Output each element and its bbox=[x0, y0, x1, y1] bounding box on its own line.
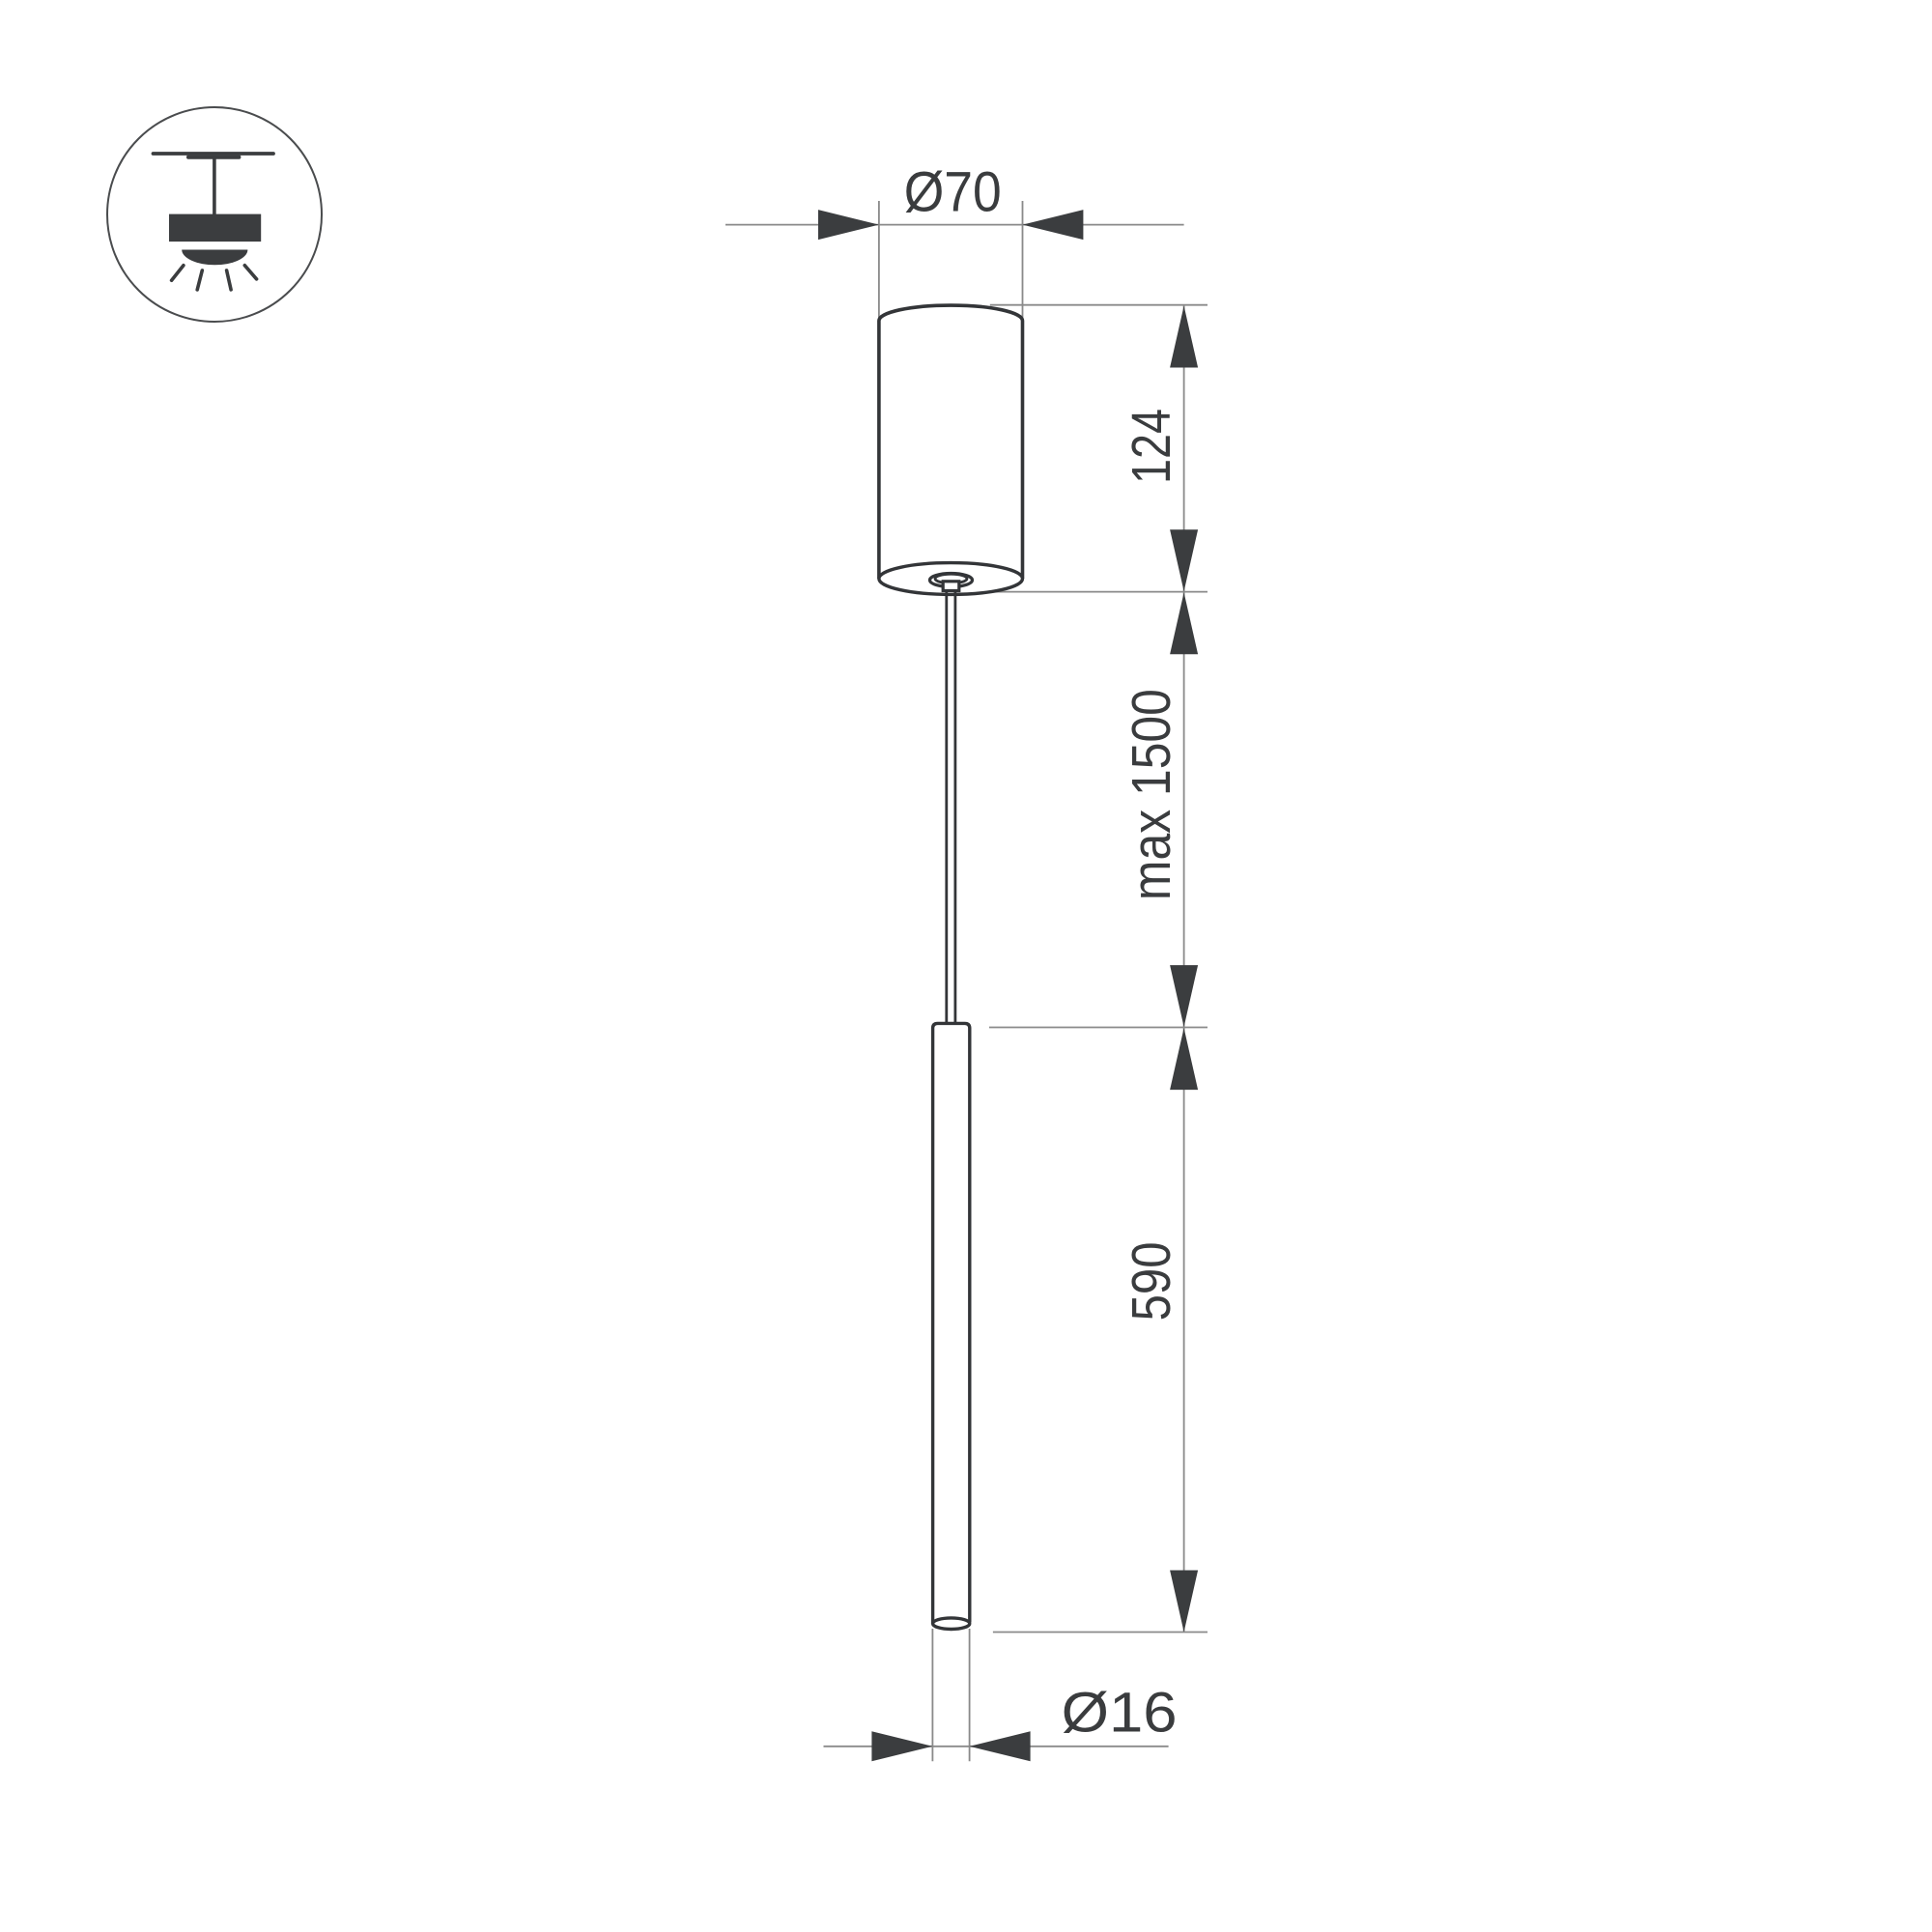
svg-text:Ø16: Ø16 bbox=[1062, 1682, 1178, 1745]
svg-text:max 1500: max 1500 bbox=[1121, 689, 1182, 900]
svg-text:124: 124 bbox=[1121, 409, 1182, 484]
svg-text:Ø70: Ø70 bbox=[904, 161, 1002, 224]
svg-text:590: 590 bbox=[1121, 1241, 1182, 1321]
